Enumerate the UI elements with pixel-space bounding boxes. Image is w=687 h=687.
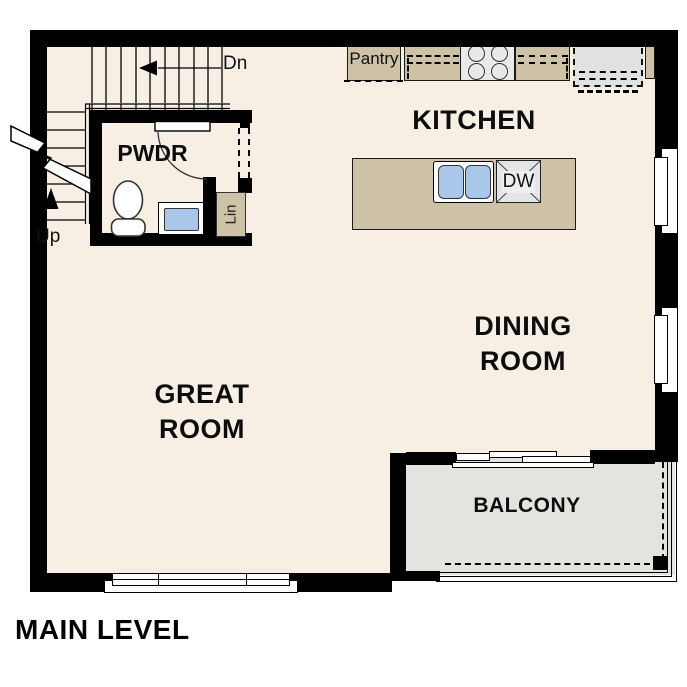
plan-title: MAIN LEVEL — [15, 614, 190, 646]
window-mid-line — [113, 579, 289, 580]
linen-label: Lin — [223, 204, 240, 224]
refrigerator-dash — [578, 90, 638, 93]
stairs-down-label: Dn — [223, 53, 247, 75]
dishwasher: DW — [496, 160, 541, 203]
dining-room-label-line2: ROOM — [448, 344, 598, 379]
closet-wall-block — [238, 178, 252, 193]
powder-wall-right — [203, 177, 216, 235]
balcony-roofline-dash — [445, 563, 650, 565]
great-room-window — [112, 573, 290, 586]
closet-opening-dash — [248, 128, 250, 178]
balcony-label: BALCONY — [452, 494, 602, 518]
floor-plan-page: Pantry DW Lin — [0, 0, 687, 687]
upper-cabinet-dash — [518, 62, 568, 64]
dining-room-label: DINING ROOM — [448, 309, 598, 379]
great-room-label-line2: ROOM — [127, 412, 277, 447]
stairs-up-label: Up — [36, 226, 60, 248]
dining-south-wall-corner — [655, 440, 678, 462]
slider-fixed-panel — [456, 453, 490, 461]
upper-cabinet-dash — [566, 58, 568, 79]
wall-top — [30, 30, 678, 47]
dining-window-upper-sash — [654, 157, 668, 226]
closet-opening-dash — [238, 128, 240, 178]
stove-burner — [468, 63, 485, 80]
powder-wall-top — [90, 110, 252, 123]
wall-right — [655, 30, 678, 462]
powder-sink-basin — [164, 208, 199, 231]
upper-cabinet-dash — [518, 55, 568, 57]
linen-closet: Lin — [216, 192, 246, 237]
great-room-label: GREAT ROOM — [127, 377, 277, 447]
sink-basin-left — [438, 165, 464, 199]
refrigerator-dash — [579, 71, 637, 73]
balcony-wall-left — [390, 453, 406, 581]
refrigerator-dash — [579, 78, 637, 80]
sink-basin-right — [465, 165, 491, 199]
pantry-label: Pantry — [349, 49, 398, 69]
pantry-shelf-dash — [344, 80, 403, 82]
stove-burner — [491, 63, 508, 80]
stove-burner — [468, 45, 485, 62]
stove-burner — [491, 45, 508, 62]
powder-label: PWDR — [100, 140, 205, 167]
balcony-wall-stub — [406, 571, 440, 581]
great-room-label-line1: GREAT — [127, 377, 277, 412]
upper-cabinet-dash — [407, 62, 459, 64]
wall-left — [30, 30, 47, 592]
upper-cabinet-dash — [407, 58, 409, 79]
dining-room-label-line1: DINING — [448, 309, 598, 344]
kitchen-label: KITCHEN — [399, 103, 549, 138]
dining-south-wall-left — [406, 452, 456, 465]
slider-threshold — [452, 462, 594, 468]
balcony-post — [653, 556, 668, 570]
dining-south-wall-right — [590, 450, 655, 464]
dishwasher-label: DW — [502, 171, 536, 193]
dining-window-lower-sash — [654, 315, 668, 384]
balcony-roofline-dash — [662, 462, 664, 560]
upper-cabinet-dash — [407, 55, 459, 57]
powder-wall-left — [90, 110, 102, 246]
